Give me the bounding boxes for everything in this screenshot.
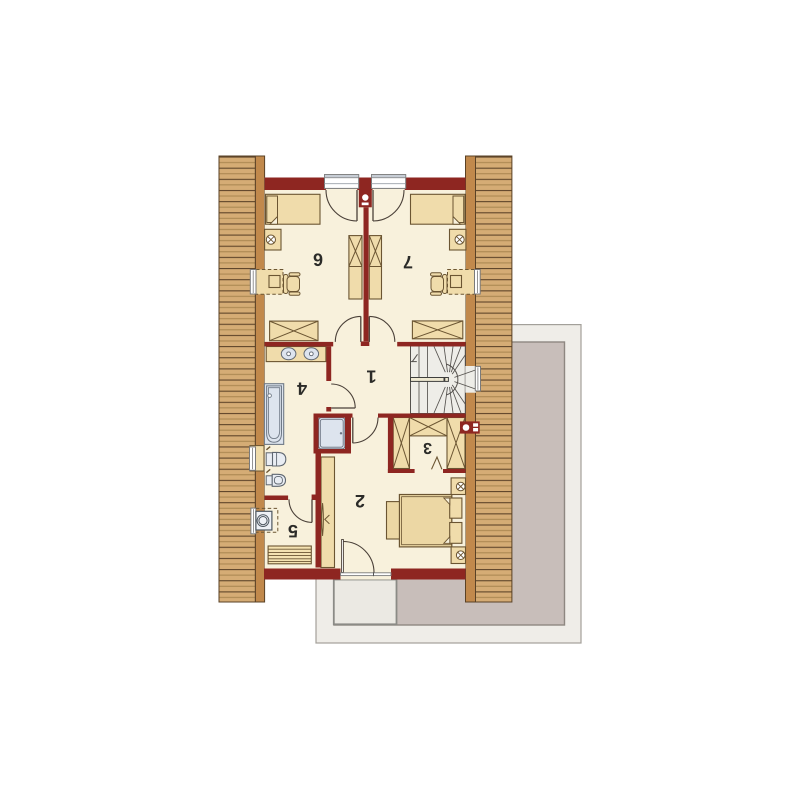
svg-text:3: 3 (423, 439, 432, 456)
svg-text:2: 2 (355, 491, 365, 511)
svg-text:4: 4 (297, 379, 307, 399)
svg-text:7: 7 (403, 252, 413, 272)
svg-text:1: 1 (366, 367, 376, 387)
svg-text:6: 6 (313, 250, 323, 270)
svg-text:5: 5 (288, 521, 298, 541)
